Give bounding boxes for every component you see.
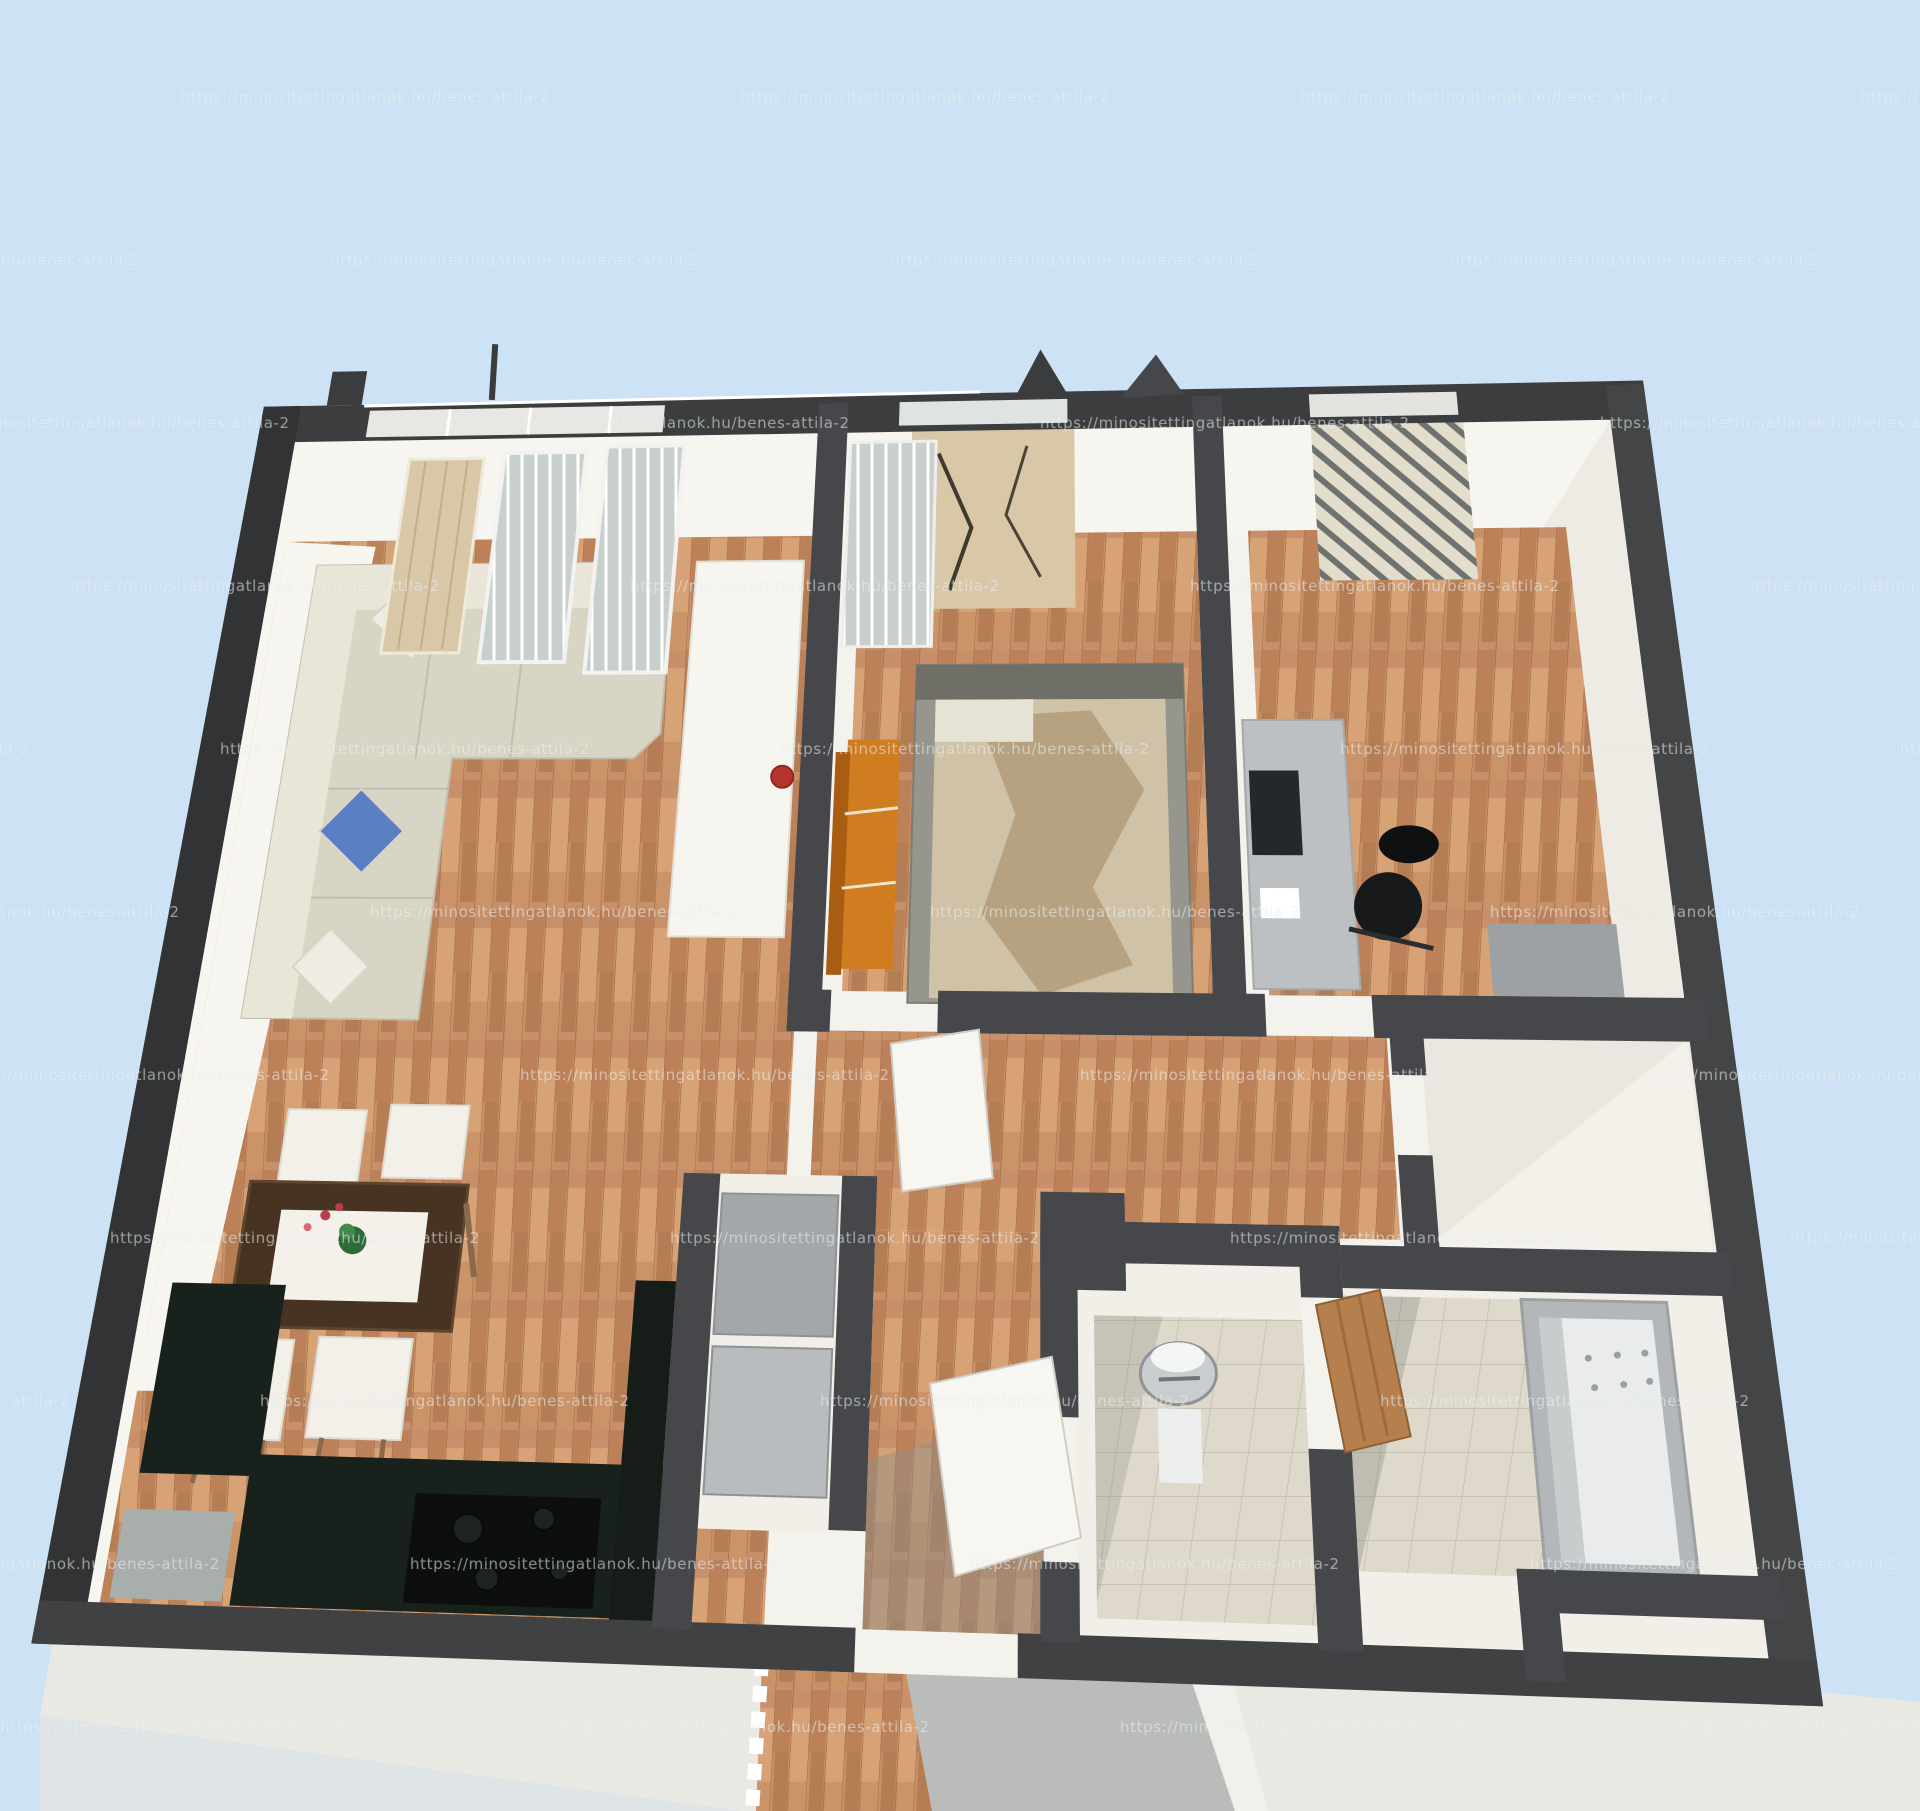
wall <box>1387 995 1427 1075</box>
tub-jet <box>1646 1378 1653 1385</box>
burner <box>475 1567 499 1591</box>
tub-jet <box>1591 1384 1598 1391</box>
wall <box>787 989 832 1032</box>
roof-box <box>327 371 367 405</box>
floorplan-3d-render <box>0 0 1920 1811</box>
desk-papers <box>1260 888 1300 919</box>
basin-pedestal <box>1158 1408 1203 1483</box>
basin-inner <box>1151 1342 1205 1372</box>
tub-jet <box>1614 1352 1621 1359</box>
walkway-wood <box>756 1660 932 1811</box>
roof-vent <box>1121 355 1184 398</box>
office-window-view <box>1311 422 1479 580</box>
cooktop <box>403 1493 602 1609</box>
walkway-gray <box>905 1666 1235 1811</box>
office-cabinet <box>1487 923 1625 997</box>
red-vase <box>771 766 793 788</box>
dining-chair <box>278 1109 368 1183</box>
open-door-white <box>891 1030 993 1192</box>
plant-leaves <box>339 1224 355 1240</box>
burner <box>551 1562 569 1580</box>
bed-headboard <box>916 664 1184 700</box>
flower <box>304 1223 312 1231</box>
bedroom-window-gap <box>899 399 1068 426</box>
wall <box>937 991 1266 1037</box>
tub-jet <box>1641 1350 1648 1357</box>
doormat <box>109 1509 235 1602</box>
flower <box>335 1203 343 1211</box>
tub-jet <box>1585 1355 1592 1362</box>
monitor <box>1249 771 1303 856</box>
floorplan-page: { "watermark": { "text": "https://minosi… <box>0 0 1920 1811</box>
leaning-glass-panel <box>842 441 936 647</box>
burner <box>533 1508 555 1530</box>
patio-door-gap <box>366 405 665 437</box>
wall <box>1298 1225 1344 1298</box>
office-chair-back <box>1379 825 1439 863</box>
office-window-gap <box>1309 392 1459 418</box>
flower <box>320 1210 330 1220</box>
fridge-top <box>713 1193 838 1336</box>
patio-panels <box>381 445 685 672</box>
table-runner <box>268 1210 429 1303</box>
fridge-bottom <box>703 1346 832 1498</box>
dining-chair <box>305 1337 413 1440</box>
wall <box>1340 1245 1735 1296</box>
wall <box>1040 1220 1341 1267</box>
bed-pillow <box>935 699 1034 742</box>
dining-chair <box>382 1105 470 1179</box>
tub-jet <box>1620 1381 1627 1388</box>
wall <box>1040 1561 1080 1642</box>
burner <box>453 1514 483 1544</box>
roof-vent <box>1014 350 1068 400</box>
